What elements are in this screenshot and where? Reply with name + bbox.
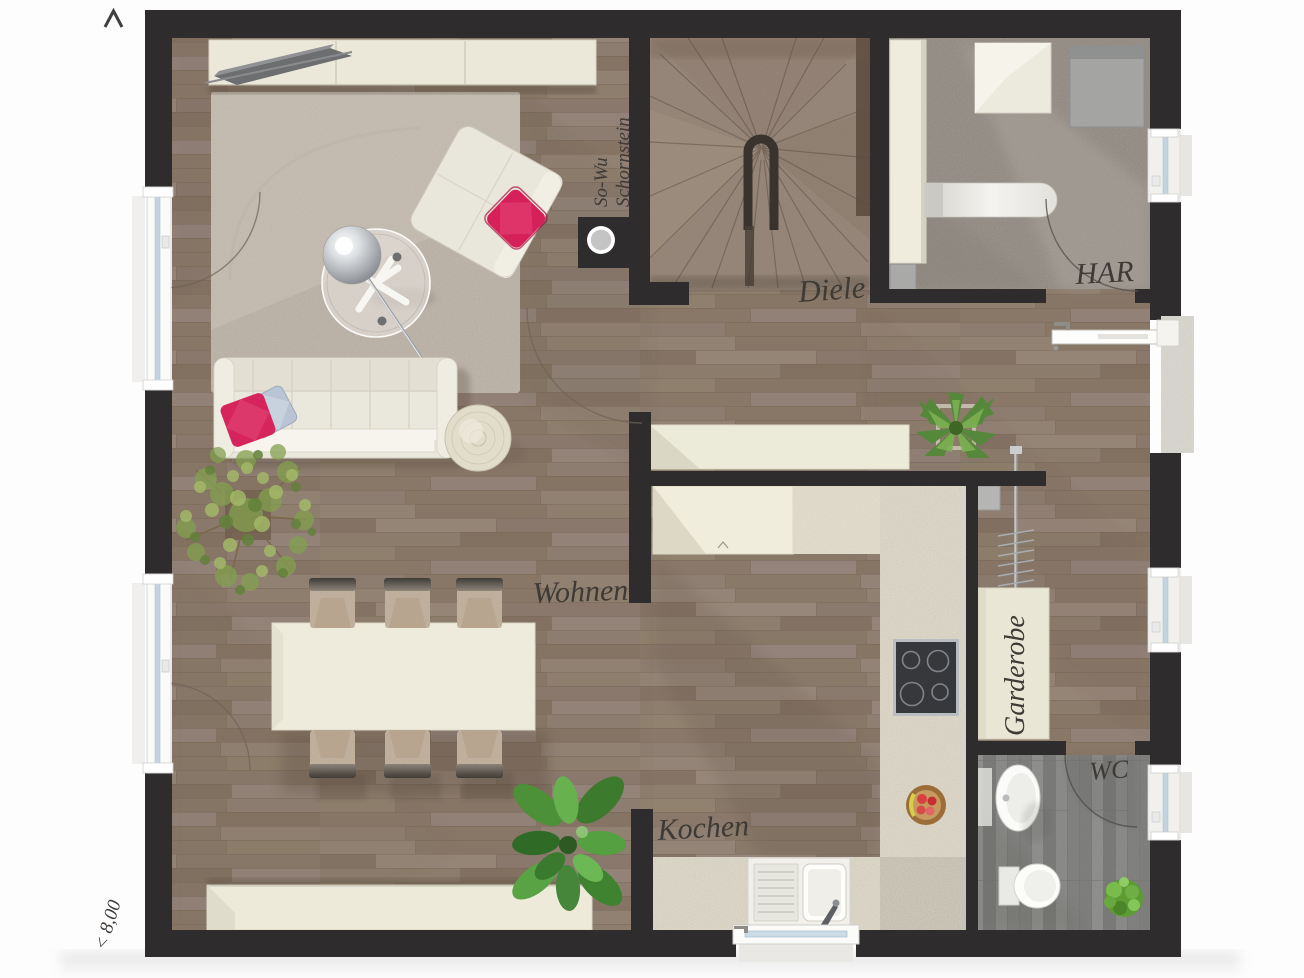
svg-text:Kochen: Kochen [656,809,750,847]
svg-text:Schornstein: Schornstein [613,117,634,207]
svg-text:Garderobe: Garderobe [1000,615,1031,736]
svg-text:So-Wu: So-Wu [591,157,612,207]
svg-text:Diele: Diele [796,269,867,309]
svg-text:Wohnen: Wohnen [532,574,629,610]
svg-text:HAR: HAR [1074,255,1135,291]
svg-text:WC: WC [1088,754,1130,786]
